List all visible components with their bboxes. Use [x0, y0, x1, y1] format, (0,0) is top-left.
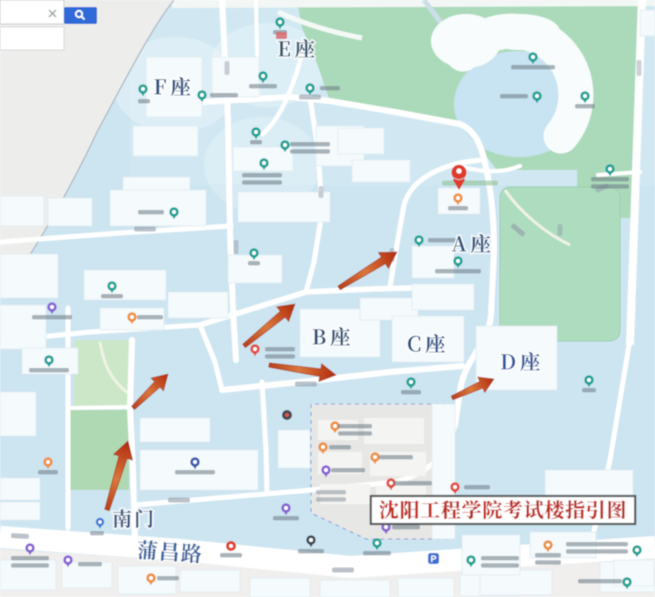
svg-text:P: P [430, 554, 436, 564]
